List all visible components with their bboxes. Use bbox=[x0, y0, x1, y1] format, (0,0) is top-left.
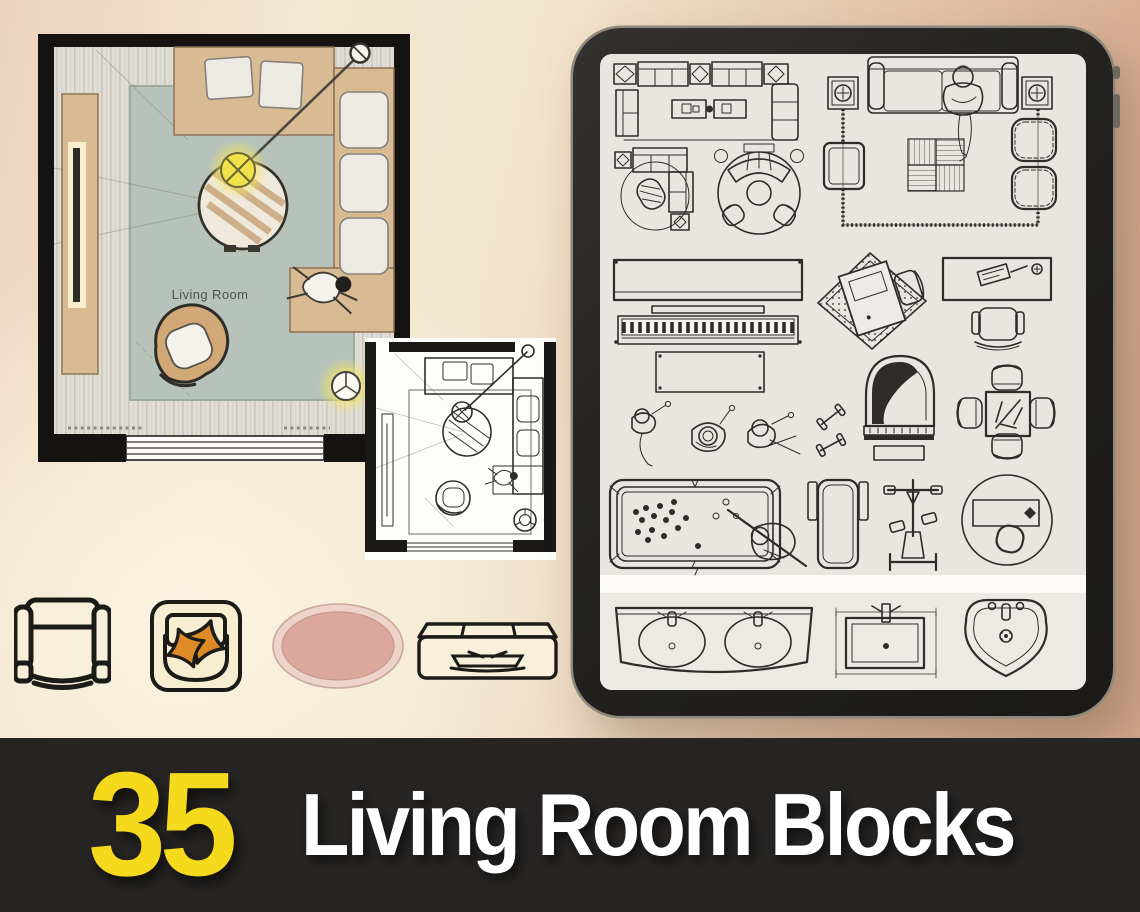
colored-floor-plan-drawing: Living Room bbox=[38, 28, 410, 468]
sketch-floor-plan bbox=[365, 338, 556, 560]
lounge-chair-pillows-icon bbox=[150, 600, 242, 697]
wall-sink-block bbox=[834, 602, 940, 678]
exercise-bike-block bbox=[884, 474, 942, 570]
round-rug-desk-block bbox=[960, 472, 1054, 568]
sketch-floor-lamp bbox=[514, 509, 536, 531]
sofa-conversation-set-block bbox=[612, 56, 808, 142]
screen-section-divider bbox=[600, 575, 1086, 593]
sketch-sideboard bbox=[425, 358, 513, 394]
double-sink-vanity-block bbox=[612, 600, 816, 686]
sketch-walls bbox=[365, 342, 556, 552]
square-rug bbox=[908, 139, 964, 191]
sectional-sofa-rug-block bbox=[615, 146, 703, 233]
colored-floor-plan: Living Room bbox=[38, 28, 410, 468]
sketch-sofa bbox=[493, 378, 543, 494]
tablet-mockup bbox=[573, 28, 1113, 716]
sketch-console bbox=[382, 414, 393, 526]
pool-player bbox=[728, 510, 806, 566]
sofa-lounge-set-block bbox=[824, 55, 1058, 229]
armchair-icon bbox=[14, 597, 111, 702]
upright-piano-block bbox=[612, 258, 804, 393]
tablet-power-button bbox=[1113, 66, 1120, 79]
sketch-armchair bbox=[436, 481, 470, 515]
curved-sofa-rug-block bbox=[716, 144, 802, 237]
sketch-floor-plan-drawing bbox=[365, 338, 556, 560]
sketch-window bbox=[407, 543, 513, 551]
sofa-console-icon bbox=[417, 622, 558, 687]
people-figures-block bbox=[612, 396, 804, 470]
room-label: Living Room bbox=[172, 287, 249, 302]
tv-console bbox=[62, 94, 98, 374]
tablet-volume-buttons bbox=[1113, 94, 1120, 128]
dumbbells-block bbox=[816, 404, 846, 460]
writing-desk-chair-block bbox=[941, 256, 1054, 350]
sketch-person bbox=[485, 468, 520, 492]
game-table-block bbox=[956, 360, 1056, 464]
promo-graphic: Living Room bbox=[0, 0, 1140, 912]
block-count: 35 bbox=[88, 751, 231, 899]
title-banner: 35 Living Room Blocks bbox=[0, 738, 1140, 912]
tablet-screen bbox=[600, 54, 1086, 690]
pedestal-sink-block bbox=[956, 596, 1056, 682]
oval-rug-icon bbox=[271, 602, 405, 696]
banner-title: Living Room Blocks bbox=[301, 781, 1014, 869]
grand-piano-block bbox=[856, 350, 942, 462]
window bbox=[126, 436, 324, 460]
sideboard bbox=[174, 47, 334, 135]
treadmill-block bbox=[806, 476, 870, 572]
pool-table-block bbox=[608, 476, 808, 572]
piano-bench bbox=[656, 352, 764, 392]
desk-diagonal-rug-block bbox=[818, 253, 930, 351]
